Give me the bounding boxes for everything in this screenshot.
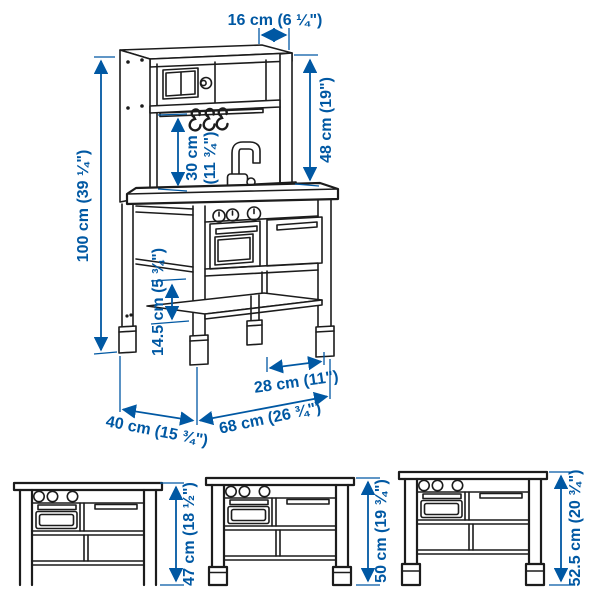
microwave — [163, 68, 212, 99]
dimension-label: 52.5 cm (20 ¾") — [567, 470, 584, 587]
dimension-label: 30 cm — [184, 135, 201, 180]
drawer-handle — [287, 500, 329, 505]
dimension-height-47: 47 cm (18 ½") — [160, 482, 198, 586]
leg-extension-feet — [402, 564, 544, 585]
dimension-hutch-height: 48 cm (19") — [294, 55, 335, 186]
dimension-top-depth: 16 cm (6 ¼") — [228, 12, 323, 50]
dimension-depth: 40 cm (15 ¾") — [104, 356, 209, 450]
back-left-leg — [119, 204, 136, 353]
countertop — [206, 478, 354, 485]
faucet — [228, 142, 261, 191]
main-perspective-view: 16 cm (6 ¼") 48 cm (19") 30 cm (11 ¾") 1… — [75, 12, 340, 450]
diagram-canvas: 16 cm (6 ¼") 48 cm (19") 30 cm (11 ¾") 1… — [0, 0, 600, 600]
dimension-width: 68 cm (26 ¾") — [200, 359, 330, 438]
dimension-label: 50 cm (19 ¾") — [373, 479, 390, 583]
dimension-label: 47 cm (18 ½") — [181, 482, 198, 586]
bottom-shelf — [147, 293, 322, 319]
dimension-label: 14.5 cm (5 ¾") — [150, 248, 167, 356]
front-view-52-5: 52.5 cm (20 ¾") — [399, 470, 584, 587]
drawer-handle — [480, 494, 522, 499]
dimension-label: 40 cm (15 ¾") — [104, 413, 209, 449]
dimension-label: 100 cm (39 ¼") — [75, 150, 92, 263]
countertop — [399, 472, 547, 479]
hutch-left-panel — [120, 50, 150, 202]
oven-handle — [423, 494, 461, 499]
front-view-50: 50 cm (19 ¾") — [206, 478, 390, 585]
front-right-foot — [316, 326, 334, 357]
dimension-label: (11 ¾") — [202, 132, 219, 185]
countertop — [127, 183, 338, 204]
front-left-foot — [190, 335, 208, 365]
dimension-label: 48 cm (19") — [318, 77, 335, 163]
dimension-leg-spacing: 28 cm (11") — [253, 352, 340, 397]
faucet-spout — [232, 142, 260, 178]
leg-extension-feet — [209, 567, 351, 585]
front-view-47: 47 cm (18 ½") — [14, 482, 198, 586]
drawer-handle — [95, 505, 137, 510]
dimension-label: 68 cm (26 ¾") — [218, 400, 323, 438]
dimension-height-52-5: 52.5 cm (20 ¾") — [549, 470, 584, 587]
oven-handle — [38, 505, 76, 510]
dimension-label: 28 cm (11") — [253, 368, 340, 397]
drawer — [267, 217, 322, 266]
countertop — [14, 483, 162, 490]
dimension-total-height: 100 cm (39 ¼") — [75, 57, 117, 354]
oven-handle — [230, 500, 268, 505]
dimension-label: 16 cm (6 ¼") — [228, 12, 323, 29]
dimension-height-50: 50 cm (19 ¾") — [356, 478, 390, 585]
hutch-right-upright — [280, 53, 292, 187]
dimension-diagram: 16 cm (6 ¼") 48 cm (19") 30 cm (11 ¾") 1… — [0, 0, 600, 600]
